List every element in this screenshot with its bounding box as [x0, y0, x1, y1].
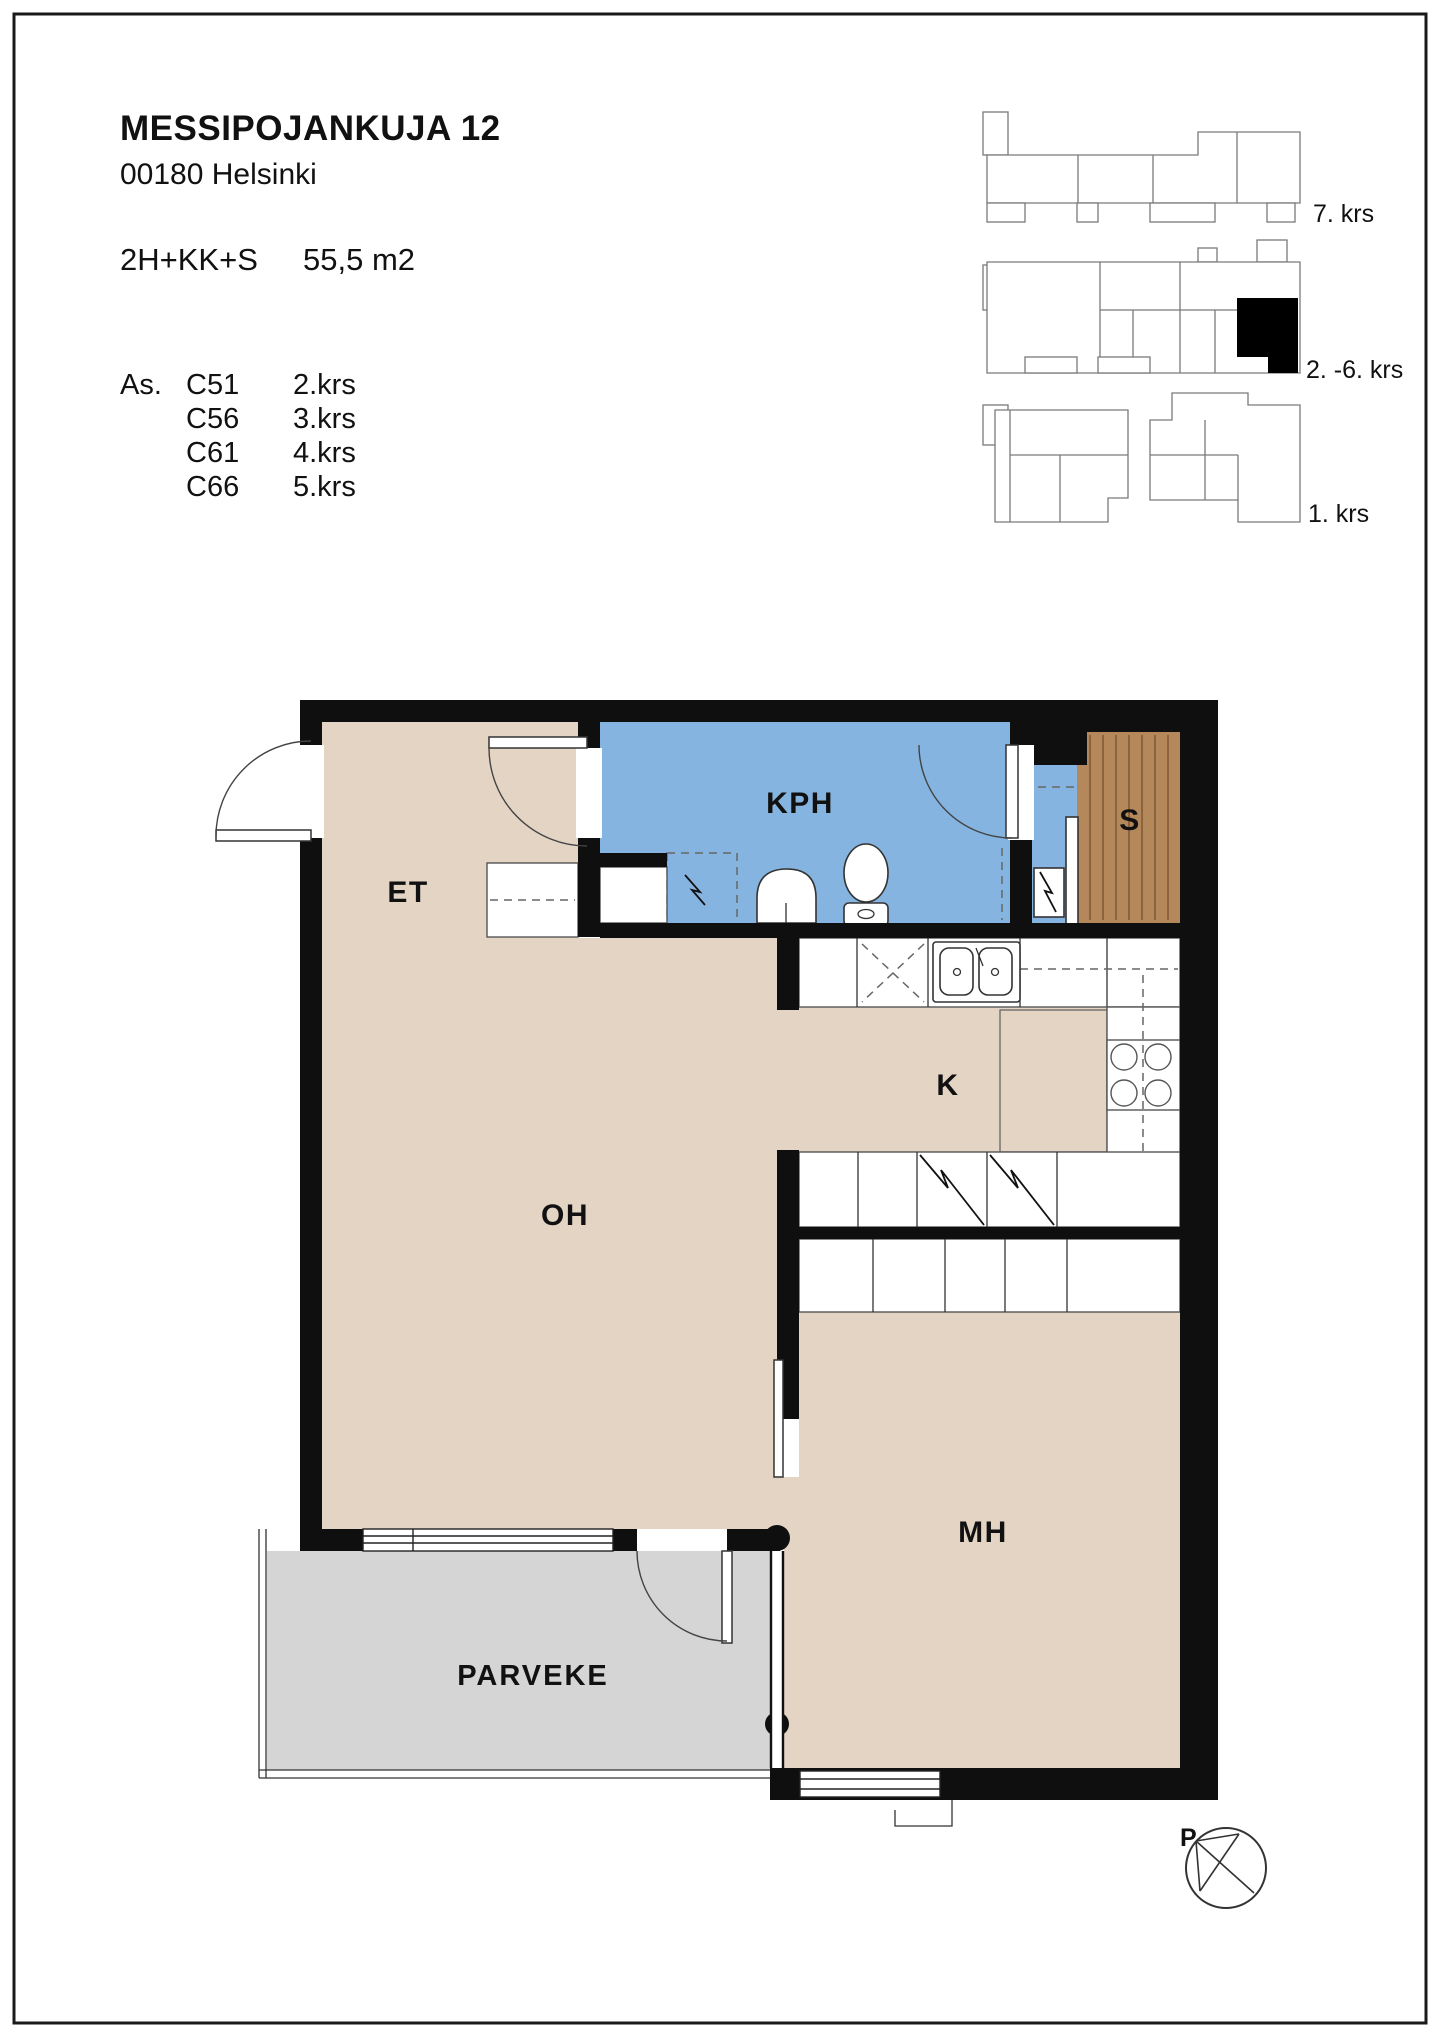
apartment-area: 55,5 m2: [303, 242, 415, 277]
apartment-floor: 2.krs: [293, 369, 356, 401]
kph-door-leaf: [1006, 745, 1018, 838]
floorplan-page: MESSIPOJANKUJA 12 00180 Helsinki 2H+KK+S…: [0, 0, 1440, 2037]
apartment-list: As. C51 2.krs C56 3.krs C61 4.krs C66 5.…: [120, 369, 356, 503]
mh-window: [800, 1771, 940, 1797]
compass-north-label: P: [1180, 1824, 1197, 1852]
wardrobe-row: [799, 1239, 1180, 1312]
room-label-oh: OH: [541, 1199, 589, 1232]
wall-kph-bottom: [600, 923, 1180, 938]
header: MESSIPOJANKUJA 12 00180 Helsinki 2H+KK+S…: [120, 109, 501, 503]
wall-right: [1180, 700, 1218, 1800]
wall-kitchen-mh: [799, 1227, 1180, 1239]
room-label-et: ET: [387, 876, 428, 909]
wall-balcony-left: [300, 1529, 363, 1551]
key-label-floors2to6: 2. -6. krs: [1306, 356, 1403, 384]
key-diagram-floor7: 7. krs: [983, 112, 1374, 228]
wall-oh-kitchen: [777, 930, 799, 1010]
burner-icon: [1145, 1044, 1171, 1070]
apartment-floor: 5.krs: [293, 471, 356, 503]
burner-icon: [1145, 1080, 1171, 1106]
wall-sauna-top: [1087, 700, 1180, 732]
et-door-leaf: [489, 737, 587, 748]
kitchen-cabinet-row: [799, 1152, 1180, 1227]
key-diagram-floor1: 1. krs: [983, 393, 1369, 528]
compass: P: [1180, 1824, 1266, 1908]
toilet-tank: [844, 903, 888, 926]
wall-balcony-jamb: [613, 1529, 637, 1551]
room-label-mh: MH: [958, 1516, 1008, 1549]
sink-basin-right: [979, 948, 1012, 995]
sink-basin-left: [940, 948, 973, 995]
apartment-code: C56: [186, 403, 239, 435]
utility-cabinet: [600, 867, 667, 923]
burner-icon: [1111, 1044, 1137, 1070]
oh-balcony-window: [363, 1529, 613, 1551]
key-diagram-floors2to6: 2. -6. krs: [983, 240, 1403, 384]
wall-shaft: [600, 853, 667, 867]
column: [764, 1525, 790, 1551]
room-label-kitchen: K: [936, 1069, 959, 1102]
sliding-door-leaf: [774, 1360, 783, 1477]
apartment-code: C61: [186, 437, 239, 469]
mh-wardrobes: [799, 1239, 1180, 1312]
kitchen-island: [1000, 1010, 1107, 1152]
room-label-kph: KPH: [766, 787, 834, 820]
exterior-step-detail: [895, 1800, 952, 1826]
apartment-type: 2H+KK+S: [120, 242, 258, 277]
toilet-bowl: [844, 844, 888, 902]
address: 00180 Helsinki: [120, 158, 317, 191]
key-label-floor7: 7. krs: [1313, 200, 1374, 228]
apartment-floor: 4.krs: [293, 437, 356, 469]
et-closet: [487, 863, 578, 937]
room-label-balcony: PARVEKE: [457, 1660, 609, 1692]
room-label-sauna: S: [1119, 804, 1141, 837]
entry-door-swing: [216, 741, 311, 836]
sauna-glass-wall: [1066, 817, 1078, 928]
entry-door-leaf: [216, 830, 311, 841]
apartment-code: C51: [186, 369, 239, 401]
balcony-door-leaf: [722, 1551, 732, 1643]
apartment-list-prefix: As.: [120, 369, 162, 401]
apartment-code: C66: [186, 471, 239, 503]
apartment-floor: 3.krs: [293, 403, 356, 435]
page-title: MESSIPOJANKUJA 12: [120, 109, 501, 148]
burner-icon: [1111, 1080, 1137, 1106]
key-label-floor1: 1. krs: [1308, 500, 1369, 528]
